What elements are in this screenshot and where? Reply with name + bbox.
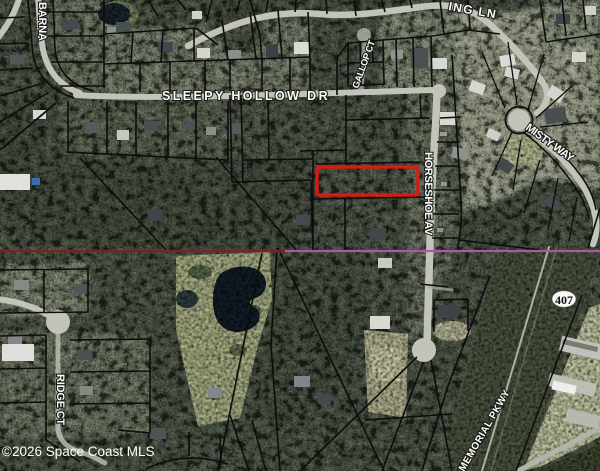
svg-text:RIDGE CT: RIDGE CT [54, 374, 66, 425]
svg-text:BARNA: BARNA [36, 2, 48, 41]
svg-text:SLEEPY HOLLOW DR: SLEEPY HOLLOW DR [162, 89, 330, 103]
svg-text:©2026 Space Coast MLS: ©2026 Space Coast MLS [2, 444, 155, 459]
svg-text:HORSESHOE AV: HORSESHOE AV [422, 152, 434, 236]
svg-text:407: 407 [555, 293, 573, 307]
